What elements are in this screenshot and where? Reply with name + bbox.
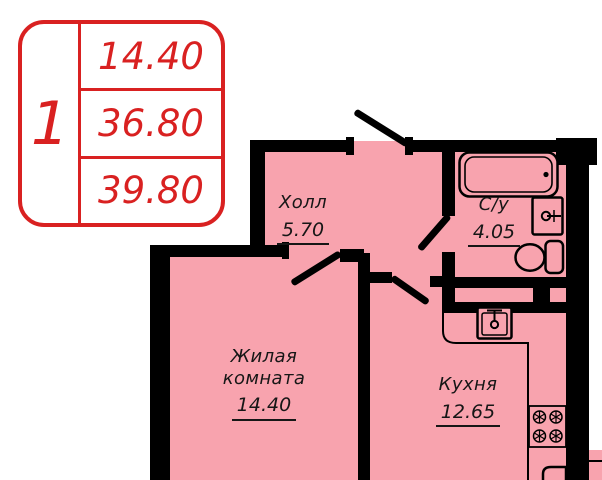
wall-stub-small — [430, 276, 442, 287]
wall-door-jamb — [346, 137, 354, 155]
legend-area-row-3: 39.80 — [81, 156, 221, 223]
hall-label: Холл 5.70 — [248, 192, 358, 245]
balcony-fixture-line — [589, 460, 602, 462]
wall-duct-upper — [455, 277, 567, 288]
legend-area-row-1: 14.40 — [81, 24, 221, 88]
kitchen-area-value: 12.65 — [436, 401, 500, 428]
hall-area-value: 5.70 — [277, 219, 329, 246]
wall-living-top — [150, 245, 288, 257]
bathroom-name: С/у — [450, 194, 538, 216]
rooms-count-cell: 1 — [22, 24, 81, 223]
balcony-sliver — [589, 450, 602, 480]
kitchen-sink-icon — [476, 306, 513, 340]
kitchen-label: Кухня 12.65 — [418, 374, 518, 427]
apartment-legend-table: 1 14.40 36.80 39.80 — [18, 20, 225, 227]
fridge-icon — [540, 464, 568, 480]
living-room-name: Жилая комната — [214, 346, 314, 389]
wall-duct-connector — [533, 277, 550, 313]
wall-stub-kitchen-door — [364, 272, 392, 283]
legend-area-row-2: 36.80 — [81, 88, 221, 155]
hall-name: Холл — [248, 192, 358, 214]
bathroom-label: С/у 4.05 — [450, 194, 538, 247]
wall-top-left — [250, 140, 353, 152]
wall-living-kitchen — [358, 253, 370, 480]
floor-plan: Холл 5.70 С/у 4.05 Жилая комната 14.40 К… — [0, 0, 602, 480]
bathtub-icon — [458, 151, 559, 198]
living-room-area-value: 14.40 — [232, 394, 296, 421]
wall-left-exterior — [150, 245, 170, 480]
living-room-label: Жилая комната 14.40 — [214, 346, 314, 421]
kitchen-name: Кухня — [418, 374, 518, 396]
wall-right-exterior — [566, 150, 589, 480]
bathroom-area-value: 4.05 — [468, 221, 520, 248]
stove-icon — [528, 405, 567, 448]
